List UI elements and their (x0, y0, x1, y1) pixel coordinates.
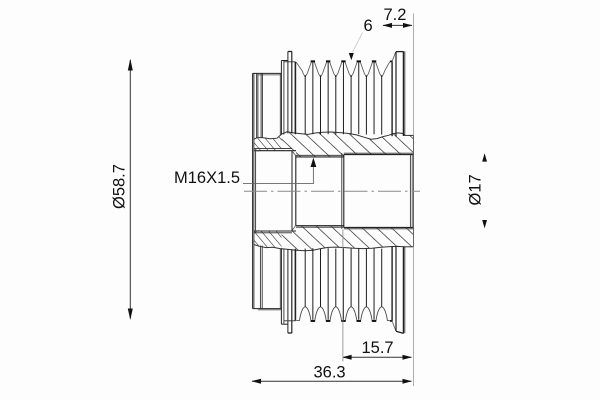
svg-text:Ø17: Ø17 (467, 174, 485, 205)
svg-text:36.3: 36.3 (314, 364, 346, 382)
svg-text:15.7: 15.7 (362, 339, 394, 357)
svg-text:M16X1.5: M16X1.5 (174, 169, 240, 187)
svg-text:7.2: 7.2 (384, 6, 407, 24)
svg-text:6: 6 (364, 17, 373, 35)
svg-text:Ø58.7: Ø58.7 (111, 164, 129, 209)
